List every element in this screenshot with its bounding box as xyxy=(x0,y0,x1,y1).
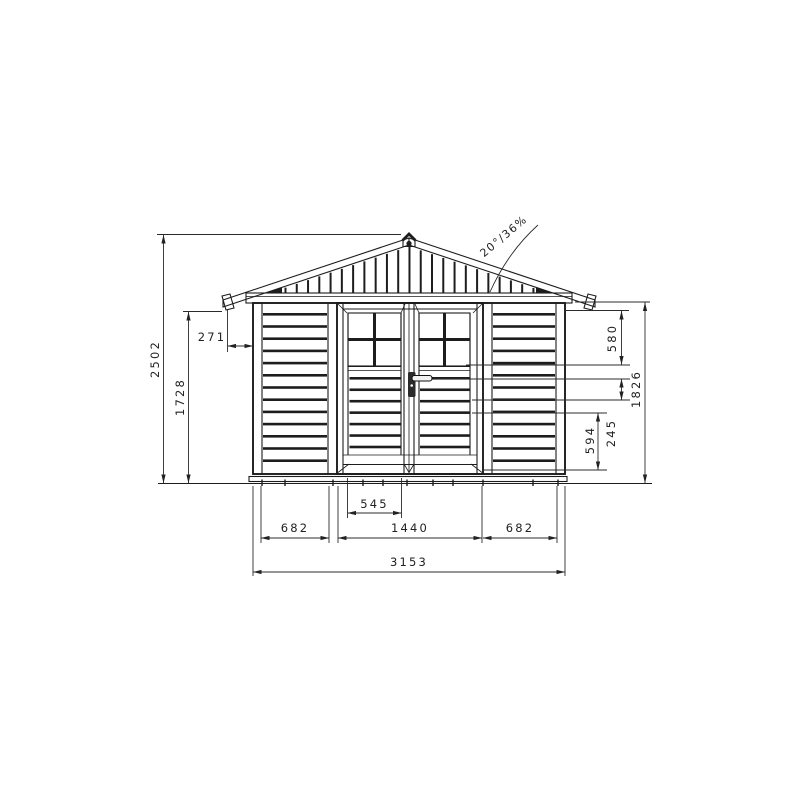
dim-wall-height: 1826 xyxy=(629,370,643,408)
gable-slats xyxy=(286,247,534,293)
double-door xyxy=(337,303,483,474)
door-window-left xyxy=(348,313,401,366)
right-wall-panel xyxy=(483,303,565,474)
eave-band xyxy=(246,293,572,303)
base-plate xyxy=(249,477,567,487)
keyhole-icon xyxy=(410,384,413,387)
shed-front-elevation-drawing: 2502 1728 271 580 1826 245 594 545 682 1… xyxy=(0,0,800,800)
base-anchor-ticks xyxy=(262,480,558,487)
shed-structure xyxy=(158,234,652,487)
dim-total-height: 2502 xyxy=(148,340,162,378)
left-wall-siding xyxy=(263,313,327,462)
dim-right-panel-width: 682 xyxy=(506,521,535,535)
door-handle xyxy=(408,372,432,397)
dim-door-leaf-width: 545 xyxy=(360,497,389,511)
door-left-leaf-slats xyxy=(350,377,401,448)
dim-door-window-height: 580 xyxy=(605,324,619,353)
dim-handle-height: 245 xyxy=(604,419,618,448)
dim-total-width: 3153 xyxy=(390,555,428,569)
left-wall-panel xyxy=(253,303,337,474)
roof-slope-label: 20°/36% xyxy=(478,213,530,260)
dim-left-panel-width: 682 xyxy=(281,521,310,535)
right-wall-siding xyxy=(493,313,555,462)
door-right-leaf-slats xyxy=(420,377,470,448)
dim-door-width: 1440 xyxy=(391,521,429,535)
dim-eave-height: 1728 xyxy=(173,378,187,416)
handle-lever xyxy=(412,376,432,382)
dim-door-lower-panel: 594 xyxy=(583,426,597,455)
door-window-right xyxy=(419,313,470,366)
dim-roof-overhang: 271 xyxy=(198,330,227,344)
technical-drawing-page: 2502 1728 271 580 1826 245 594 545 682 1… xyxy=(0,0,800,800)
